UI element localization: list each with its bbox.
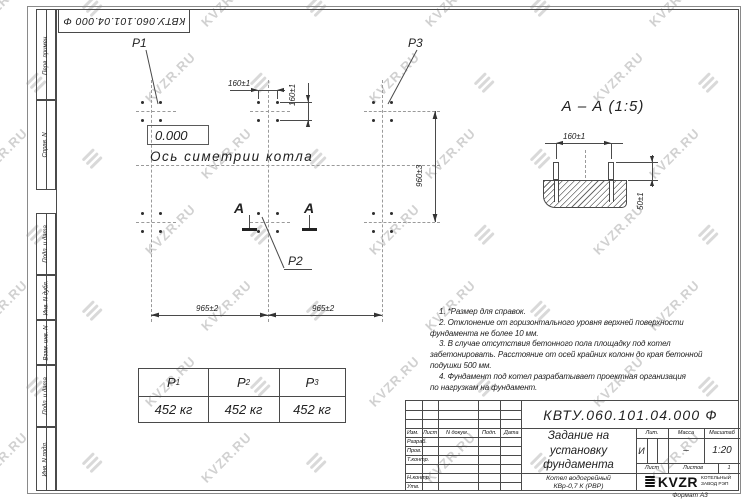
anchor-bolt-dot (257, 212, 260, 215)
point-label-p2: P2 (288, 254, 303, 268)
watermark-text: KVZR.RU (0, 277, 31, 333)
margin-box-perv-primen: Перв. примен. (36, 9, 56, 100)
anchor-bolt-dot (141, 119, 144, 122)
section-mark-bar-right (302, 228, 317, 231)
point-label-p1: P1 (132, 36, 147, 50)
anchor-bolt-right (608, 162, 614, 180)
note-line: 2. Отклонение от горизонтального уровня … (430, 318, 742, 329)
anchor-bolt-dot (372, 230, 375, 233)
anchor-bolt-left (553, 162, 559, 180)
plan-centerline-middle (268, 80, 269, 322)
tb-row-tkontr: Т.контр. (407, 457, 429, 463)
p2-leader-shelf (284, 269, 312, 270)
plan-axis-bottom-right (364, 222, 440, 223)
margin-box-inv-dubl: Инв. N дубл. (36, 275, 56, 320)
plan-axis-top-right (364, 111, 440, 112)
margin-label: Инв. N дубл. (43, 280, 49, 315)
tb-line (406, 464, 521, 465)
tb-line (647, 438, 648, 463)
margin-box-vzam-inv: Взам. инв. N (36, 320, 56, 365)
p-label: P (305, 375, 314, 390)
anchor-bolt-dot (159, 230, 162, 233)
dim-965-right: 965±2 (312, 304, 334, 313)
p-label: P (167, 375, 176, 390)
margin-box-podp-data-1: Подп. и дата (36, 213, 56, 275)
p-sub: 3 (314, 378, 318, 387)
anchor-bolt-dot (276, 119, 279, 122)
elevation-mark-box: 0.000 (147, 125, 209, 145)
symmetry-axis-label: Ось симетрии котла (150, 149, 313, 164)
tb-mass-value: – (668, 438, 704, 463)
section-mark-tick-left (249, 215, 250, 228)
section-mark-tick-right (309, 215, 310, 228)
plan-symmetry-axis-line (136, 165, 440, 166)
anchor-bolt-dot (372, 119, 375, 122)
plan-axis-bottom-left (136, 222, 176, 223)
tb-line (406, 446, 521, 447)
tb-row-prov: Пров. (407, 448, 422, 454)
tb-sheets-value: 1 (718, 463, 740, 473)
drawing-sheet: KVZR.RUKVZR.RUKVZR.RUKVZR.RUKVZR.RUKVZR.… (0, 0, 750, 500)
ext-line (556, 143, 557, 159)
anchor-bolt-dot (257, 101, 260, 104)
table-value-p1: 452 кг (139, 396, 208, 422)
tb-row-nkontr: Н.контр. (407, 475, 430, 481)
plan-centerline-left (151, 80, 152, 322)
format-label: Формат А3 (650, 492, 730, 499)
note-line: 4. Фундамент под котел разрабатывает про… (430, 372, 742, 383)
note-line: 3. В случае отсутствия бетонного пола пл… (430, 339, 742, 350)
anchor-bolt-dot (159, 119, 162, 122)
tb-row-utv: Утв. (407, 484, 420, 490)
margin-box-podp-data-2: Подп. и дата (36, 365, 56, 427)
tb-sheet-header: Лист (636, 463, 668, 473)
anchor-bolt-dot (141, 212, 144, 215)
tb-product-line: КВр-0,7 К (РВР) (521, 483, 636, 491)
p-label: P (237, 375, 246, 390)
tb-row-razrab: Разраб. (407, 439, 427, 445)
tb-lit-value: И (636, 438, 647, 463)
kvzr-coil-icon (645, 476, 655, 488)
anchor-bolt-dot (276, 101, 279, 104)
anchor-bolt-dot (390, 101, 393, 104)
tb-mass-header: Масса (668, 428, 704, 438)
tb-sheets-header: Листов (668, 463, 718, 473)
ext-line (277, 90, 278, 99)
dim-160-horizontal: 160±1 (228, 79, 250, 88)
note-line: по нагрузкам на фундамент. (430, 383, 742, 394)
anchor-bolt-dot (257, 230, 260, 233)
anchor-bolt-dot (159, 101, 162, 104)
tb-title-line: фундамента (521, 458, 636, 473)
note-line: фундамента не более 10 мм. (430, 329, 742, 340)
tb-product-line: Котел водогрейный (521, 475, 636, 483)
margin-box-sprav-n: Справ. N (36, 100, 56, 190)
dim-line-section-50 (652, 155, 653, 187)
margin-label: Подп. и дата (43, 225, 49, 263)
notes-block: 1. *Размер для справок. 2. Отклонение от… (430, 307, 742, 393)
tb-col-list: Лист (423, 430, 437, 436)
table-header-p3: P3 (279, 369, 345, 396)
section-centerline (585, 150, 586, 178)
title-block: Изм. Лист N докум. Подп. Дата Разраб. Пр… (405, 400, 739, 490)
anchor-bolt-dot (141, 230, 144, 233)
table-header-p1: P1 (139, 369, 208, 396)
note-line: подушки 500 мм. (430, 361, 742, 372)
anchor-bolt-dot (372, 212, 375, 215)
tb-line (406, 482, 521, 483)
ext-line (616, 162, 658, 163)
plan-axis-top-left (136, 111, 176, 112)
kvzr-logo-sub1: КОТЕЛЬНЫЙ (701, 476, 731, 481)
watermark-text: KVZR.RU (0, 0, 31, 30)
tb-scale-value: 1:20 (704, 438, 740, 463)
tb-title-line: установку (521, 444, 636, 459)
tb-title: Задание на установку фундамента (521, 429, 636, 473)
top-stamp-box: КВТУ.060.101.04.000 Ф (58, 9, 190, 33)
anchor-bolt-right-embedded (609, 181, 614, 202)
anchor-bolt-dot (390, 212, 393, 215)
anchor-bolt-dot (372, 101, 375, 104)
tb-title-line: Задание на (521, 429, 636, 444)
plan-axis-bottom-mid (250, 222, 290, 223)
tb-line (406, 410, 521, 411)
ext-line (611, 143, 612, 159)
tb-col-izm: Изм. (407, 430, 419, 436)
point-label-p3: P3 (408, 36, 423, 50)
anchor-bolt-dot (276, 212, 279, 215)
p-sub: 1 (176, 378, 180, 387)
section-title: А – А (1:5) (543, 98, 663, 115)
dim-960: 960±3 (415, 165, 424, 187)
tb-logo: KVZR КОТЕЛЬНЫЙ ЗАВОД РЭП (636, 473, 740, 490)
tb-product: Котел водогрейный КВр-0,7 К (РВР) (521, 474, 636, 492)
ext-line (628, 180, 658, 181)
anchor-bolt-dot (141, 101, 144, 104)
dim-section-160: 160±1 (563, 132, 585, 141)
dim-line-965 (151, 315, 382, 316)
p-sub: 2 (246, 378, 250, 387)
ext-line (280, 120, 312, 121)
watermark-text: KVZR.RU (0, 125, 31, 181)
margin-label: Подп. и дата (43, 377, 49, 415)
table-header-p2: P2 (208, 369, 279, 396)
section-letter-left: А (234, 200, 244, 216)
margin-label: Инв. N подл. (43, 441, 49, 476)
elevation-value: 0.000 (155, 128, 188, 143)
top-stamp-doc-number: КВТУ.060.101.04.000 Ф (63, 15, 185, 27)
note-line: 1. *Размер для справок. (430, 307, 742, 318)
tb-col-ndoc: N докум. (446, 430, 468, 436)
watermark-text: KVZR.RU (0, 429, 31, 485)
anchor-bolt-dot (159, 212, 162, 215)
margin-box-inv-podl: Инв. N подл. (36, 427, 56, 491)
dim-line-960 (435, 111, 436, 222)
anchor-bolt-dot (390, 230, 393, 233)
tb-scale-header: Масштаб (704, 428, 740, 438)
kvzr-logo-subtext: КОТЕЛЬНЫЙ ЗАВОД РЭП (701, 476, 731, 487)
tb-doc-number: КВТУ.060.101.04.000 Ф (521, 401, 740, 428)
margin-label: Справ. N (43, 132, 49, 157)
table-value-p2: 452 кг (208, 396, 279, 422)
margin-label: Перв. примен. (43, 35, 49, 75)
ext-line (258, 90, 259, 99)
kvzr-logo-sub2: ЗАВОД РЭП (701, 482, 731, 487)
tb-line (657, 438, 658, 463)
tb-lit-header: Лит. (636, 428, 668, 438)
kvzr-logo-text: KVZR (658, 474, 698, 490)
tb-col-podp: Подп. (482, 430, 497, 436)
dim-965-left: 965±2 (196, 304, 218, 313)
ext-line (280, 102, 312, 103)
anchor-bolt-dot (390, 119, 393, 122)
tb-col-data: Дата (504, 430, 519, 436)
load-table: P1 P2 P3 452 кг 452 кг 452 кг (138, 368, 346, 423)
dim-section-50: 50±1 (636, 192, 645, 210)
table-value-p3: 452 кг (279, 396, 345, 422)
tb-line (406, 419, 521, 420)
section-letter-right: А (304, 200, 314, 216)
section-mark-bar-left (242, 228, 257, 231)
note-line: забетонировать. Расстояние от осей крайн… (430, 350, 742, 361)
anchor-bolt-dot (276, 230, 279, 233)
margin-label: Взам. инв. N (43, 325, 49, 360)
anchor-bolt-left-embedded (554, 181, 559, 202)
anchor-bolt-dot (257, 119, 260, 122)
plan-centerline-right (382, 80, 383, 322)
plan-axis-top-mid (250, 111, 290, 112)
